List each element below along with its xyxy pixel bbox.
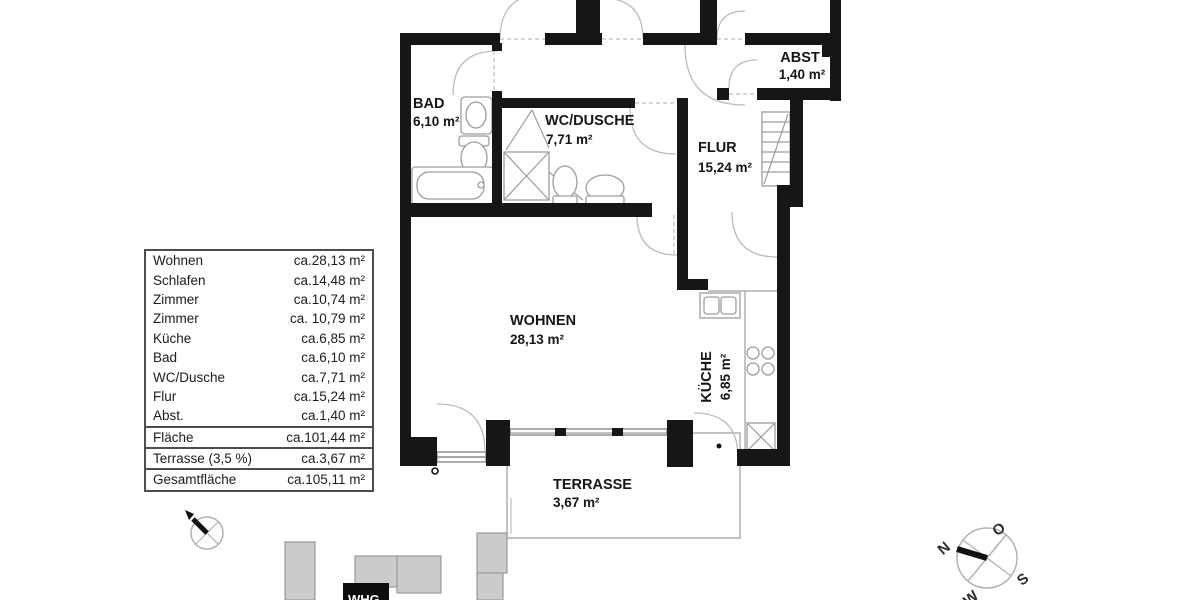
table-row: WC/Dusche ca.7,71 m² [146,367,372,386]
shaft-icon [747,423,775,451]
staircase-icon [762,112,790,186]
row-label: Gesamtfläche [153,472,236,487]
row-label: Abst. [153,408,184,423]
room-area-flur: 15,24 m² [698,160,753,175]
walls [400,0,841,467]
site-plan: WHG [185,498,511,600]
window-mullion [555,428,566,436]
door-arc [630,108,676,154]
door-arc [453,51,497,95]
compass-rose-small [185,510,223,549]
door-arc [729,60,757,88]
building-footprint [477,573,503,600]
row-value: ca.1,40 m² [301,408,365,423]
door-arc [602,0,643,39]
table-row: Zimmer ca. 10,79 m² [146,309,372,328]
plan-marker [717,444,722,449]
row-value: ca.105,11 m² [287,472,365,487]
row-label: Küche [153,331,191,346]
compass-o: O [989,519,1009,540]
room-area-bad: 6,10 m² [413,114,460,129]
room-label-abst: ABST [780,50,820,66]
row-value: ca.7,71 m² [301,370,365,385]
compass-rose-large: N O S W [934,519,1032,600]
row-value: ca.6,10 m² [301,350,365,365]
row-value: ca.3,67 m² [301,451,365,466]
door-arc [717,11,745,39]
room-area-abst: 1,40 m² [779,67,826,82]
row-value: ca. 10,79 m² [290,311,365,326]
table-row-flaeche: Fläche ca.101,44 m² [146,426,372,447]
room-label-kueche: KÜCHE [698,351,715,403]
door-arc [732,212,777,257]
row-label: WC/Dusche [153,370,225,385]
row-value: ca.28,13 m² [294,253,365,268]
table-row: Schlafen ca.14,48 m² [146,270,372,289]
compass-n: N [934,539,953,559]
window-mullion [612,428,623,436]
compass-needle-icon [193,519,207,533]
table-row-terrasse: Terrasse (3,5 %) ca.3,67 m² [146,447,372,468]
row-value: ca.15,24 m² [294,389,365,404]
row-value: ca.101,44 m² [286,430,365,445]
room-label-wohnen: WOHNEN [510,313,576,329]
toilet-icon [553,166,577,198]
row-value: ca.10,74 m² [294,292,365,307]
row-label: Wohnen [153,253,203,268]
door-arc [500,0,545,39]
table-row: Küche ca.6,85 m² [146,329,372,348]
table-row: Bad ca.6,10 m² [146,348,372,367]
room-area-terrasse: 3,67 m² [553,495,600,510]
compass-needle-icon [957,549,987,558]
table-row: Abst. ca.1,40 m² [146,406,372,425]
row-value: ca.14,48 m² [294,273,365,288]
stove-icon [747,347,774,375]
row-label: Zimmer [153,292,199,307]
building-footprint [355,556,398,587]
room-area-kueche: 6,85 m² [718,353,733,400]
table-row: Flur ca.15,24 m² [146,387,372,406]
door-arc [637,215,677,255]
room-label-terrasse: TERRASSE [553,477,632,493]
row-label: Bad [153,350,177,365]
table-row: Wohnen ca.28,13 m² [146,251,372,270]
table-row-gesamtflaeche: Gesamtfläche ca.105,11 m² [146,468,372,489]
room-label-bad: BAD [413,96,444,112]
building-footprint [285,542,315,600]
area-table: Wohnen ca.28,13 m² Schlafen ca.14,48 m² … [144,249,374,492]
shower-screen-icon [506,110,532,150]
building-footprint [397,556,441,593]
plan-marker [432,468,438,474]
row-label: Terrasse (3,5 %) [153,451,252,466]
row-label: Zimmer [153,311,199,326]
door-arc [437,404,485,452]
room-area-wohnen: 28,13 m² [510,332,565,347]
room-label-wc-dusche: WC/DUSCHE [545,113,635,129]
door-arc [685,45,745,105]
room-area-wc-dusche: 7,71 m² [546,132,593,147]
row-value: ca.6,85 m² [301,331,365,346]
floor-plan-page: WHG [0,0,1200,600]
building-footprint [477,533,507,573]
room-label-flur: FLUR [698,140,737,156]
compass-s: S [1014,570,1033,589]
compass-w: W [960,587,982,600]
compass-arrow-icon [185,510,194,520]
whg-label: WHG [348,592,380,600]
row-label: Flur [153,389,176,404]
row-label: Fläche [153,430,194,445]
row-label: Schlafen [153,273,206,288]
table-row: Zimmer ca.10,74 m² [146,290,372,309]
